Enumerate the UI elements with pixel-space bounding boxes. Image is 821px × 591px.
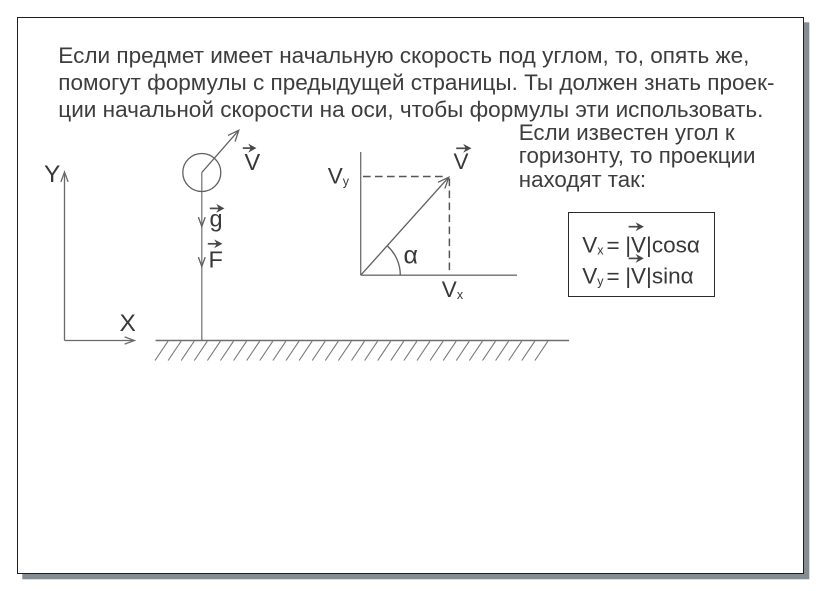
svg-text:F: F — [209, 247, 223, 273]
svg-text:Vy=|V|sinα: Vy=|V|sinα — [582, 264, 693, 289]
svg-text:g: g — [210, 206, 223, 232]
svg-text:Vy: Vy — [328, 164, 350, 189]
svg-text:X: X — [120, 310, 136, 337]
svg-text:V: V — [454, 149, 469, 174]
svg-text:Vx=|V|cosα: Vx=|V|cosα — [582, 232, 700, 257]
svg-text:V: V — [245, 149, 261, 175]
svg-text:Y: Y — [44, 161, 60, 188]
svg-text:α: α — [404, 242, 418, 270]
svg-text:Vx: Vx — [442, 277, 464, 302]
